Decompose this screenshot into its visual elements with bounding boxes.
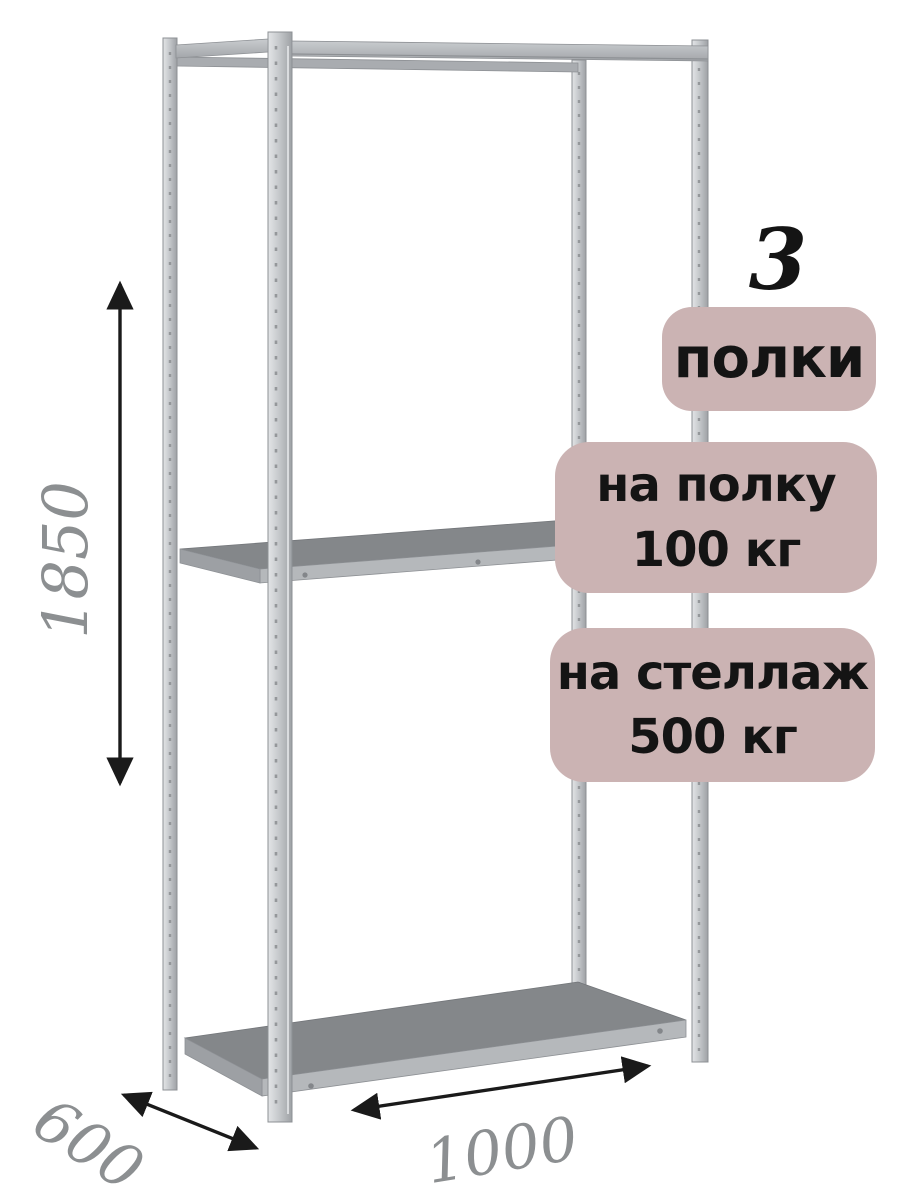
shelf-load-line1: на полку [555,453,877,517]
rack-load-line1: на стеллаж [550,641,875,705]
rack-load-line2: 500 кг [550,705,875,769]
shelf-load-badge: на полку 100 кг [555,442,877,593]
bottom-shelf [185,982,686,1096]
shelf-load-line2: 100 кг [555,518,877,582]
shelf-count-label: полки [674,326,864,391]
rack-load-badge: на стеллаж 500 кг [550,628,875,782]
left-top-beam [176,39,268,58]
back-left-post [163,38,177,1090]
height-dimension-label: 1850 [32,470,100,650]
shelving-rack-render [0,0,900,1200]
back-top-beam [176,57,578,72]
front-left-post [268,32,292,1122]
shelf-count-number: 3 [718,218,838,302]
product-image: 1850 1000 600 3 полки на полку 100 кг на… [0,0,900,1200]
shelf-count-badge: полки [662,307,876,411]
front-top-beam [292,41,708,61]
